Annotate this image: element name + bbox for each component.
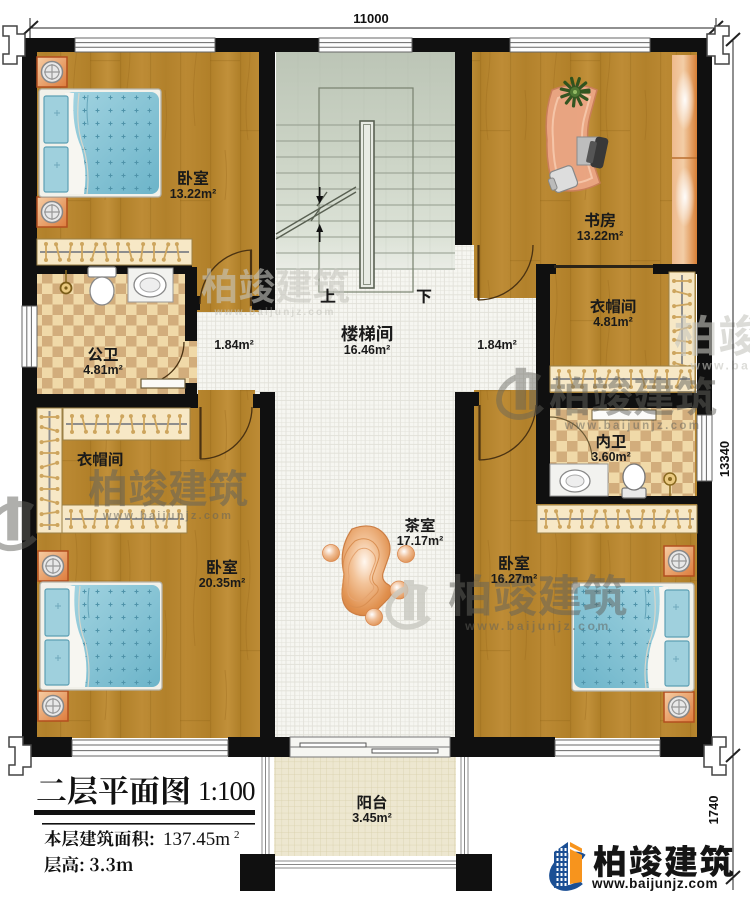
- svg-text:www.baijunjz.com: www.baijunjz.com: [564, 420, 702, 432]
- svg-text:20.35m²: 20.35m²: [199, 576, 246, 590]
- svg-text:1.84m²: 1.84m²: [214, 338, 254, 352]
- svg-text:www.baijunjz.com: www.baijunjz.com: [214, 307, 336, 318]
- svg-text:www.baijunjz.com: www.baijunjz.com: [689, 359, 750, 373]
- svg-text:2: 2: [234, 829, 240, 841]
- svg-text:1:100: 1:100: [198, 776, 255, 806]
- svg-text:3.45m²: 3.45m²: [352, 811, 392, 825]
- svg-text:4.81m²: 4.81m²: [593, 315, 633, 329]
- svg-text:13340: 13340: [717, 441, 732, 477]
- svg-text:16.27m²: 16.27m²: [491, 572, 538, 586]
- svg-text:137.45m: 137.45m: [163, 829, 230, 850]
- svg-text:11000: 11000: [353, 11, 388, 26]
- svg-text:17.17m²: 17.17m²: [397, 534, 444, 548]
- svg-text:4.81m²: 4.81m²: [83, 363, 123, 377]
- svg-text:13.22m²: 13.22m²: [577, 229, 624, 243]
- svg-text:13.22m²: 13.22m²: [170, 187, 217, 201]
- svg-text:16.46m²: 16.46m²: [344, 343, 391, 357]
- svg-text:www.baijunjz.com: www.baijunjz.com: [464, 619, 611, 633]
- svg-text:www.baijunjz.com: www.baijunjz.com: [102, 510, 233, 522]
- svg-text:3.60m²: 3.60m²: [591, 450, 631, 464]
- svg-text:1740: 1740: [706, 796, 721, 825]
- svg-text:1.84m²: 1.84m²: [477, 338, 517, 352]
- svg-text:www.baijunjz.com: www.baijunjz.com: [591, 876, 718, 891]
